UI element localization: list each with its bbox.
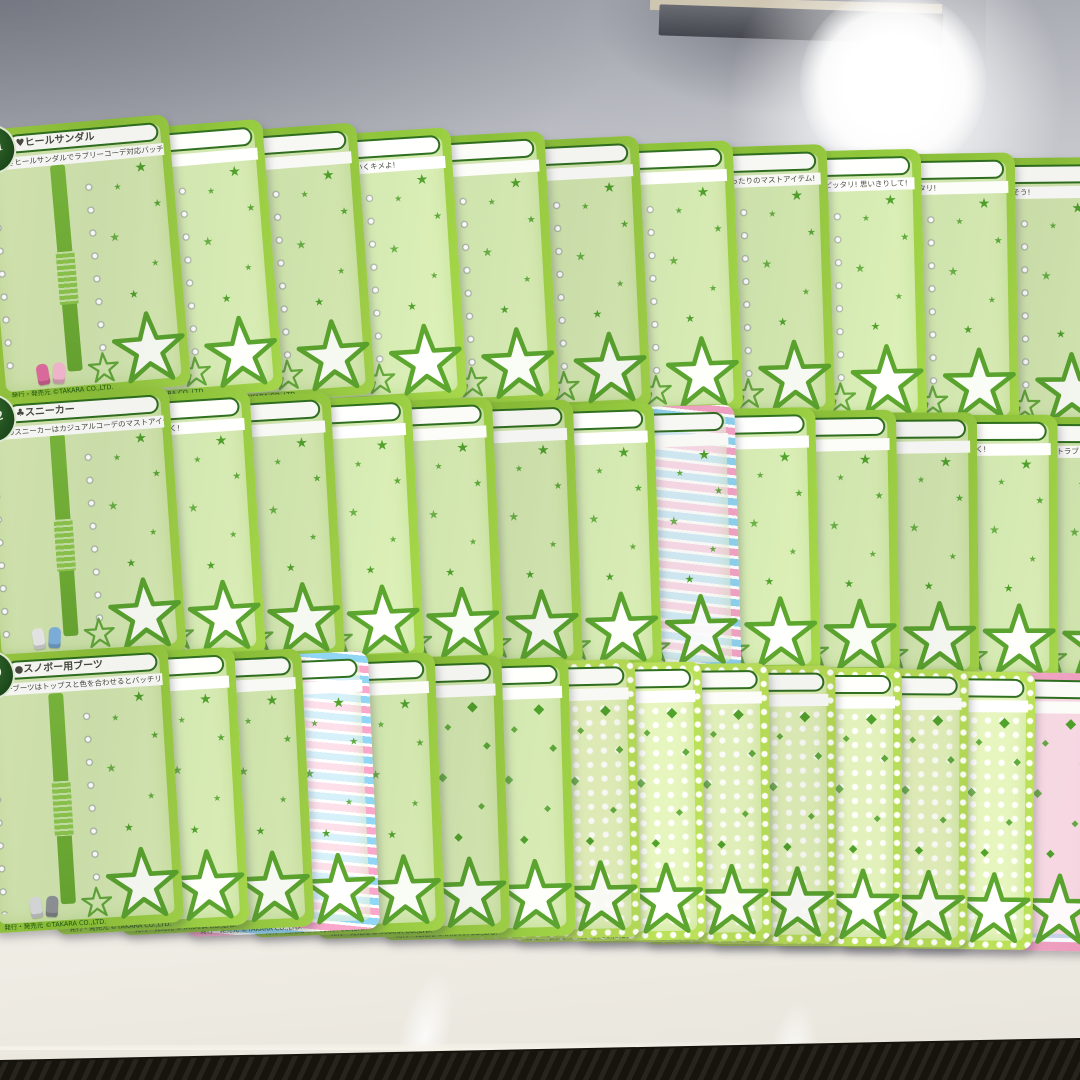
card-vertical-text-plate: [51, 781, 73, 837]
star-icon: ★: [789, 548, 797, 557]
star-icon: ★: [709, 546, 717, 555]
star-icon: ★: [415, 739, 424, 749]
star-icon: ★: [312, 475, 322, 485]
star-icon: ★: [349, 737, 358, 747]
big-star-icon: [822, 597, 899, 674]
star-icon: ★: [709, 285, 717, 294]
big-star-icon: [386, 320, 467, 401]
star-icon: ★: [246, 203, 256, 214]
diamond-icon: ◆: [652, 837, 661, 848]
star-icon: ★: [1071, 201, 1080, 215]
diamond-icon: ◆: [849, 843, 857, 854]
diamond-icon: ◆: [682, 748, 690, 758]
star-icon: ★: [988, 297, 996, 306]
star-icon: ★: [393, 477, 402, 487]
star-icon: ★: [229, 531, 238, 540]
star-icon: ★: [714, 487, 723, 497]
diamond-icon: ◆: [932, 714, 943, 728]
star-icon: ★: [588, 513, 599, 525]
star-icon: ★: [375, 438, 388, 453]
diamond-icon: ◆: [800, 710, 811, 724]
big-star-icon: [264, 578, 344, 658]
diamond-icon: ◆: [549, 743, 557, 753]
diamond-icon: ◆: [717, 839, 726, 850]
diamond-icon: ◆: [915, 845, 924, 856]
star-icon: ★: [761, 257, 772, 269]
diamond-icon: ◆: [666, 706, 677, 720]
star-icon: ★: [365, 564, 375, 575]
star-icon: ★: [113, 454, 122, 464]
star-icon: ★: [134, 431, 148, 446]
big-star-icon: [663, 333, 742, 412]
diamond-icon: ◆: [520, 833, 529, 844]
big-star-icon: [200, 311, 282, 393]
star-icon: ★: [128, 289, 139, 301]
star-icon: ★: [875, 492, 884, 502]
star-icon: ★: [244, 718, 253, 727]
star-icon: ★: [592, 309, 602, 320]
star-icon: ★: [948, 265, 959, 277]
star-icon: ★: [994, 237, 1003, 247]
star-icon: ★: [107, 499, 119, 512]
star-icon: ★: [675, 207, 683, 216]
diamond-icon: ◆: [742, 811, 749, 820]
photo-of-card-collection: ★ ★ ★ ★ ★ ★ ♥ヒールサンダル お花つきヒールサンダルでラブリーコーデ…: [0, 0, 1080, 1080]
diamond-icon: ◆: [843, 734, 850, 743]
diamond-icon: ◆: [600, 704, 611, 718]
star-icon: ★: [581, 203, 590, 212]
star-icon: ★: [575, 250, 586, 263]
diamond-icon: ◆: [866, 712, 877, 726]
star-icon: ★: [199, 692, 212, 707]
diamond-icon: ◆: [1042, 740, 1049, 749]
star-icon: ★: [456, 440, 469, 455]
diamond-icon: ◆: [676, 809, 683, 818]
star-icon: ★: [978, 197, 991, 211]
big-star-icon: [105, 573, 186, 654]
star-icon: ★: [399, 698, 412, 712]
star-icon: ★: [1069, 526, 1080, 538]
diamond-icon: ◆: [999, 716, 1010, 730]
star-icon: ★: [274, 458, 283, 467]
star-icon: ★: [713, 225, 722, 235]
star-icon: ★: [684, 573, 694, 584]
star-icon: ★: [989, 524, 1000, 536]
star-icon: ★: [105, 762, 116, 775]
star-icon: ★: [629, 543, 637, 552]
diamond-icon: ◆: [1013, 758, 1021, 768]
star-icon: ★: [153, 199, 163, 210]
big-star-icon: [184, 576, 265, 657]
diamond-icon: ◆: [1006, 819, 1013, 828]
star-icon: ★: [488, 199, 497, 208]
star-icon: ★: [285, 562, 295, 574]
diamond-icon: ◆: [835, 782, 844, 794]
diamond-icon: ◆: [874, 815, 881, 824]
star-icon: ★: [764, 575, 774, 586]
diamond-icon: ◆: [808, 813, 815, 822]
star-icon: ★: [389, 536, 398, 545]
big-star-icon: [756, 337, 834, 415]
card-title: ●スノボー用ブーツ: [14, 659, 103, 675]
diamond-icon: ◆: [644, 729, 651, 738]
star-icon: ★: [216, 733, 226, 743]
big-star-icon: [981, 602, 1057, 678]
star-icon: ★: [768, 211, 776, 220]
star-icon: ★: [807, 229, 816, 239]
star-icon: ★: [187, 502, 199, 515]
star-icon: ★: [668, 515, 679, 527]
star-icon: ★: [126, 557, 137, 569]
star-icon: ★: [445, 566, 455, 577]
star-icon: ★: [1029, 556, 1037, 565]
star-icon: ★: [676, 470, 684, 479]
star-icon: ★: [884, 193, 897, 207]
diamond-icon: ◆: [544, 805, 551, 814]
star-icon: ★: [620, 220, 629, 230]
rhinestone-dots: [1018, 215, 1033, 395]
star-icon: ★: [955, 495, 964, 505]
star-icon: ★: [1020, 457, 1033, 471]
star-icon: ★: [778, 450, 791, 464]
star-icon: ★: [499, 305, 509, 317]
star-icon: ★: [434, 463, 442, 472]
star-icon: ★: [469, 539, 477, 548]
star-icon: ★: [549, 541, 557, 550]
trading-card: ★ ★ ★ ★ ★ ★ ♥ヒールサンダル お花つきヒールサンダルでラブリーコーデ…: [0, 114, 191, 402]
diamond-icon: ◆: [483, 741, 491, 751]
star-icon: ★: [508, 511, 519, 523]
star-icon: ★: [862, 215, 870, 224]
big-star-icon: [503, 586, 582, 665]
star-icon: ★: [1035, 497, 1044, 507]
star-icon: ★: [387, 829, 397, 840]
star-icon: ★: [152, 470, 162, 481]
star-icon: ★: [869, 551, 877, 560]
star-icon: ★: [213, 795, 222, 804]
star-icon: ★: [149, 529, 158, 539]
star-icon: ★: [1056, 329, 1066, 340]
trading-card: ★ ★ ★ ★ ★ ★ ●スノボー用ブーツ スノボーブーツはトップスと色を合わせ…: [0, 644, 184, 933]
star-icon: ★: [314, 297, 325, 309]
big-star-icon: [103, 843, 183, 923]
star-icon: ★: [1004, 582, 1014, 593]
star-icon: ★: [430, 272, 439, 281]
diamond-icon: ◆: [748, 750, 756, 760]
star-icon: ★: [525, 568, 535, 579]
star-icon: ★: [526, 216, 536, 226]
star-icon: ★: [605, 571, 615, 582]
diamond-icon: ◆: [776, 732, 783, 741]
card-title: ♥ヒールサンダル: [15, 132, 95, 150]
star-icon: ★: [295, 436, 308, 451]
star-icon: ★: [332, 696, 345, 711]
big-star-icon: [293, 315, 374, 396]
star-icon: ★: [790, 188, 803, 202]
star-icon: ★: [415, 172, 428, 187]
diamond-icon: ◆: [454, 831, 463, 842]
star-icon: ★: [132, 690, 145, 705]
star-icon: ★: [193, 456, 202, 465]
diamond-icon: ◆: [616, 746, 624, 756]
star-icon: ★: [859, 452, 872, 466]
star-icon: ★: [202, 234, 214, 247]
star-icon: ★: [255, 826, 265, 837]
diamond-icon: ◆: [901, 783, 910, 795]
star-icon: ★: [214, 433, 227, 448]
star-icon: ★: [111, 714, 120, 723]
star-icon: ★: [337, 268, 346, 278]
diamond-icon: ◆: [980, 846, 989, 857]
star-icon: ★: [244, 264, 253, 274]
shoe-illustration: [28, 621, 72, 650]
big-star-icon: [901, 599, 978, 676]
star-icon: ★: [696, 184, 709, 198]
star-icon: ★: [756, 472, 764, 481]
diamond-icon: ◆: [1046, 848, 1055, 859]
star-icon: ★: [924, 580, 934, 591]
trading-card: ★ ★ ★ ★ ★ ★ ♣スニーカー ブルーのスニーカーはカジュアルコーデのマス…: [0, 387, 187, 666]
star-icon: ★: [537, 443, 550, 457]
star-icon: ★: [603, 180, 616, 195]
diamond-icon: ◆: [444, 723, 451, 732]
star-icon: ★: [778, 317, 788, 328]
diamond-icon: ◆: [733, 708, 744, 722]
diamond-icon: ◆: [577, 727, 584, 736]
shoe-illustration: [25, 890, 69, 919]
star-icon: ★: [854, 261, 865, 273]
star-icon: ★: [309, 534, 318, 543]
big-star-icon: [1061, 604, 1080, 680]
star-icon: ★: [147, 793, 156, 802]
star-icon: ★: [228, 164, 242, 179]
star-icon: ★: [685, 313, 695, 324]
diamond-icon: ◆: [909, 736, 916, 745]
star-icon: ★: [354, 461, 363, 470]
star-icon: ★: [509, 176, 522, 191]
star-icon: ★: [553, 482, 562, 492]
big-star-icon: [344, 581, 424, 661]
star-icon: ★: [300, 191, 309, 201]
star-icon: ★: [388, 242, 400, 255]
star-icon: ★: [150, 731, 160, 742]
star-icon: ★: [279, 797, 288, 806]
star-icon: ★: [900, 233, 909, 243]
star-icon: ★: [595, 467, 603, 476]
star-icon: ★: [321, 168, 335, 183]
diamond-icon: ◆: [1071, 821, 1078, 830]
diamond-icon: ◆: [467, 700, 478, 714]
star-icon: ★: [433, 212, 443, 223]
star-icon: ★: [1041, 269, 1052, 281]
diamond-icon: ◆: [710, 731, 717, 740]
star-icon: ★: [407, 301, 418, 313]
star-icon: ★: [829, 519, 840, 531]
star-icon: ★: [870, 321, 880, 332]
star-icon: ★: [295, 238, 307, 251]
star-icon: ★: [109, 230, 121, 243]
star-icon: ★: [221, 293, 232, 305]
star-icon: ★: [617, 445, 630, 459]
diamond-icon: ◆: [610, 807, 617, 816]
star-icon: ★: [616, 281, 625, 290]
big-star-icon: [848, 341, 926, 419]
star-icon: ★: [113, 184, 122, 194]
diamond-icon: ◆: [881, 754, 889, 764]
star-icon: ★: [844, 578, 854, 589]
star-icon: ★: [909, 522, 920, 534]
star-icon: ★: [151, 260, 160, 270]
big-star-icon: [423, 584, 502, 663]
big-star-icon: [478, 324, 558, 404]
star-icon: ★: [634, 485, 643, 495]
star-icon: ★: [1049, 223, 1057, 232]
star-icon: ★: [939, 455, 952, 469]
star-icon: ★: [482, 246, 493, 259]
big-star-icon: [571, 328, 651, 408]
diamond-icon: ◆: [533, 702, 544, 716]
star-icon: ★: [955, 219, 963, 228]
star-icon: ★: [837, 474, 845, 483]
diamond-icon: ◆: [940, 817, 947, 826]
star-icon: ★: [515, 465, 523, 474]
star-icon: ★: [283, 735, 292, 745]
star-icon: ★: [134, 160, 148, 175]
star-icon: ★: [794, 490, 803, 500]
star-icon: ★: [428, 508, 439, 520]
diamond-icon: ◆: [783, 841, 792, 852]
star-icon: ★: [963, 325, 973, 336]
star-icon: ★: [345, 799, 353, 808]
star-icon: ★: [348, 506, 359, 519]
star-icon: ★: [895, 293, 903, 302]
star-icon: ★: [321, 828, 331, 839]
card-vertical-text-plate: [53, 518, 76, 572]
diamond-icon: ◆: [814, 752, 822, 762]
card-title: ♣スニーカー: [16, 404, 76, 419]
diamond-icon: ◆: [511, 725, 518, 734]
big-star-icon: [742, 594, 820, 672]
star-icon: ★: [268, 504, 279, 517]
diamond-icon: ◆: [478, 803, 485, 812]
big-star-icon: [583, 589, 661, 667]
star-icon: ★: [997, 479, 1005, 488]
star-icon: ★: [207, 188, 216, 198]
star-icon: ★: [698, 448, 711, 462]
star-icon: ★: [206, 559, 217, 571]
diamond-icon: ◆: [586, 835, 595, 846]
star-icon: ★: [189, 824, 199, 836]
star-icon: ★: [917, 476, 925, 485]
big-star-icon: [662, 591, 740, 669]
star-icon: ★: [265, 694, 278, 709]
diamond-icon: ◆: [975, 738, 982, 747]
star-icon: ★: [749, 517, 760, 529]
star-icon: ★: [124, 822, 135, 834]
star-icon: ★: [232, 472, 242, 483]
star-icon: ★: [668, 254, 679, 266]
star-icon: ★: [523, 276, 532, 285]
star-icon: ★: [340, 208, 350, 219]
star-icon: ★: [411, 801, 419, 810]
star-icon: ★: [802, 289, 810, 298]
star-icon: ★: [377, 721, 385, 730]
star-icon: ★: [949, 553, 957, 562]
diamond-icon: ◆: [1065, 718, 1076, 732]
shoe-illustration: [32, 356, 76, 386]
star-icon: ★: [394, 195, 403, 204]
star-icon: ★: [310, 720, 318, 729]
star-icon: ★: [177, 716, 186, 725]
star-icon: ★: [473, 480, 482, 490]
diamond-icon: ◆: [947, 756, 955, 766]
